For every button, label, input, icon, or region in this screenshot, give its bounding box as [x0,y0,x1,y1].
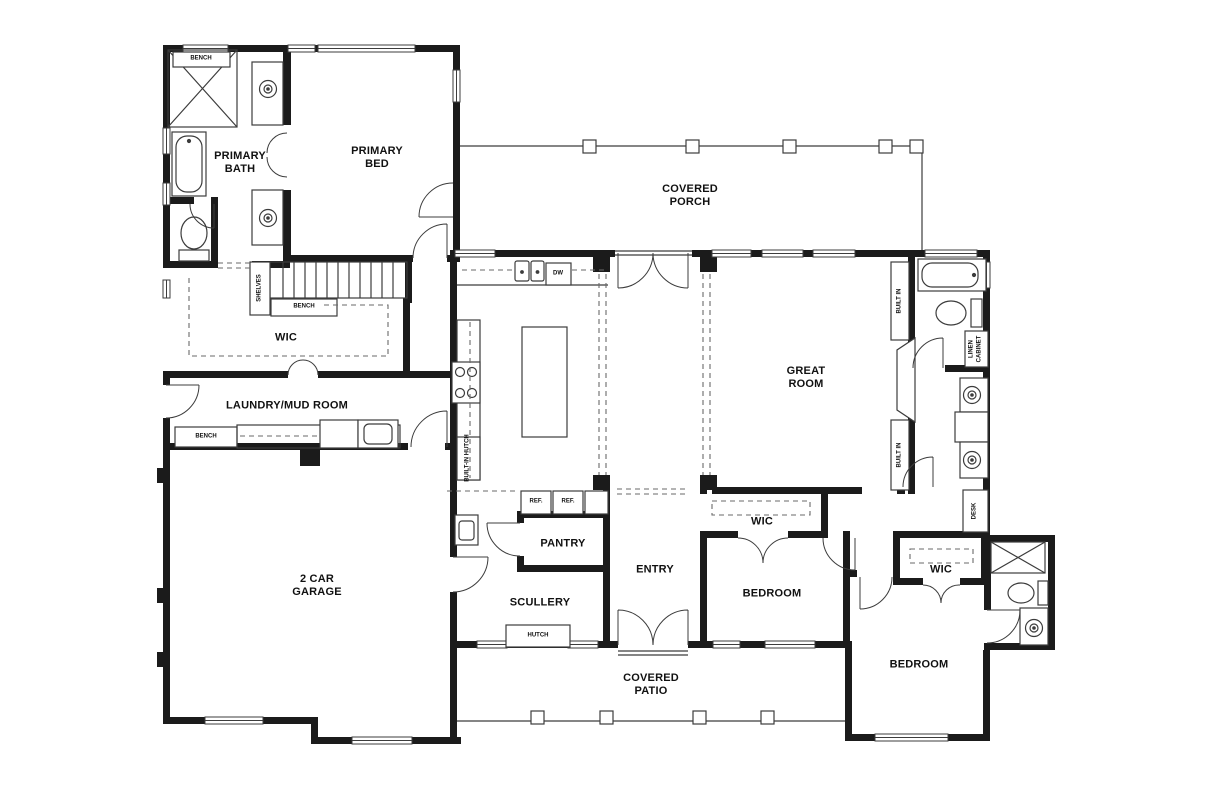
label-bench-shower: BENCH [190,55,211,62]
label-bench-stairs: BENCH [293,303,314,310]
room-label-pantry: PANTRY [540,537,585,550]
room-label-scullery: SCULLERY [510,596,570,609]
room-label-wic-bedroom-1: WIC [751,515,773,528]
label-fridge-2: REF. [561,498,574,505]
label-dishwasher: DW [553,270,563,277]
windows [163,45,990,744]
room-label-primary-bath: PRIMARY BATH [200,150,280,176]
bathtub-back-icon [918,259,986,291]
room-label-covered-patio: COVERED PATIO [609,672,693,698]
hall-vanities-icon [955,378,988,478]
label-shelves: SHELVES [256,274,263,302]
room-label-bedroom-2: BEDROOM [890,658,949,671]
toilet-back2-icon [1008,581,1048,605]
room-label-garage: 2 CAR GARAGE [280,573,354,599]
room-label-bedroom-1: BEDROOM [743,587,802,600]
room-label-great-room: GREAT ROOM [774,365,838,391]
label-built-in-upper: BUILT IN [896,289,903,314]
toilet-primary-icon [179,217,209,261]
label-desk: DESK [971,503,978,520]
room-label-wic-bedroom-2: WIC [930,563,952,576]
stairs-icon [250,262,407,316]
label-built-in-hutch: BUILT-IN HUTCH [464,434,471,482]
kitchen-counter-icon [452,261,608,480]
label-linen-cabinet: LINEN CABINET [969,328,984,370]
vanity-back2-icon [1020,608,1048,645]
scullery-sink-icon [455,515,478,545]
label-fridge-1: REF. [529,498,542,505]
label-bench-mudroom: BENCH [195,433,216,440]
room-label-wic-primary: WIC [275,331,297,344]
room-label-covered-porch: COVERED PORCH [648,183,732,209]
label-built-in-lower: BUILT IN [896,443,903,468]
toilet-back-icon [936,299,982,327]
shower-back-icon [991,542,1045,573]
room-label-entry: ENTRY [636,563,674,576]
room-label-primary-bed: PRIMARY BED [342,145,412,171]
room-label-laundry-mud-room: LAUNDRY/MUD ROOM [226,399,348,412]
label-hutch: HUTCH [528,632,549,639]
floor-plan: PRIMARY BATH PRIMARY BED COVERED PORCH W… [0,0,1224,792]
